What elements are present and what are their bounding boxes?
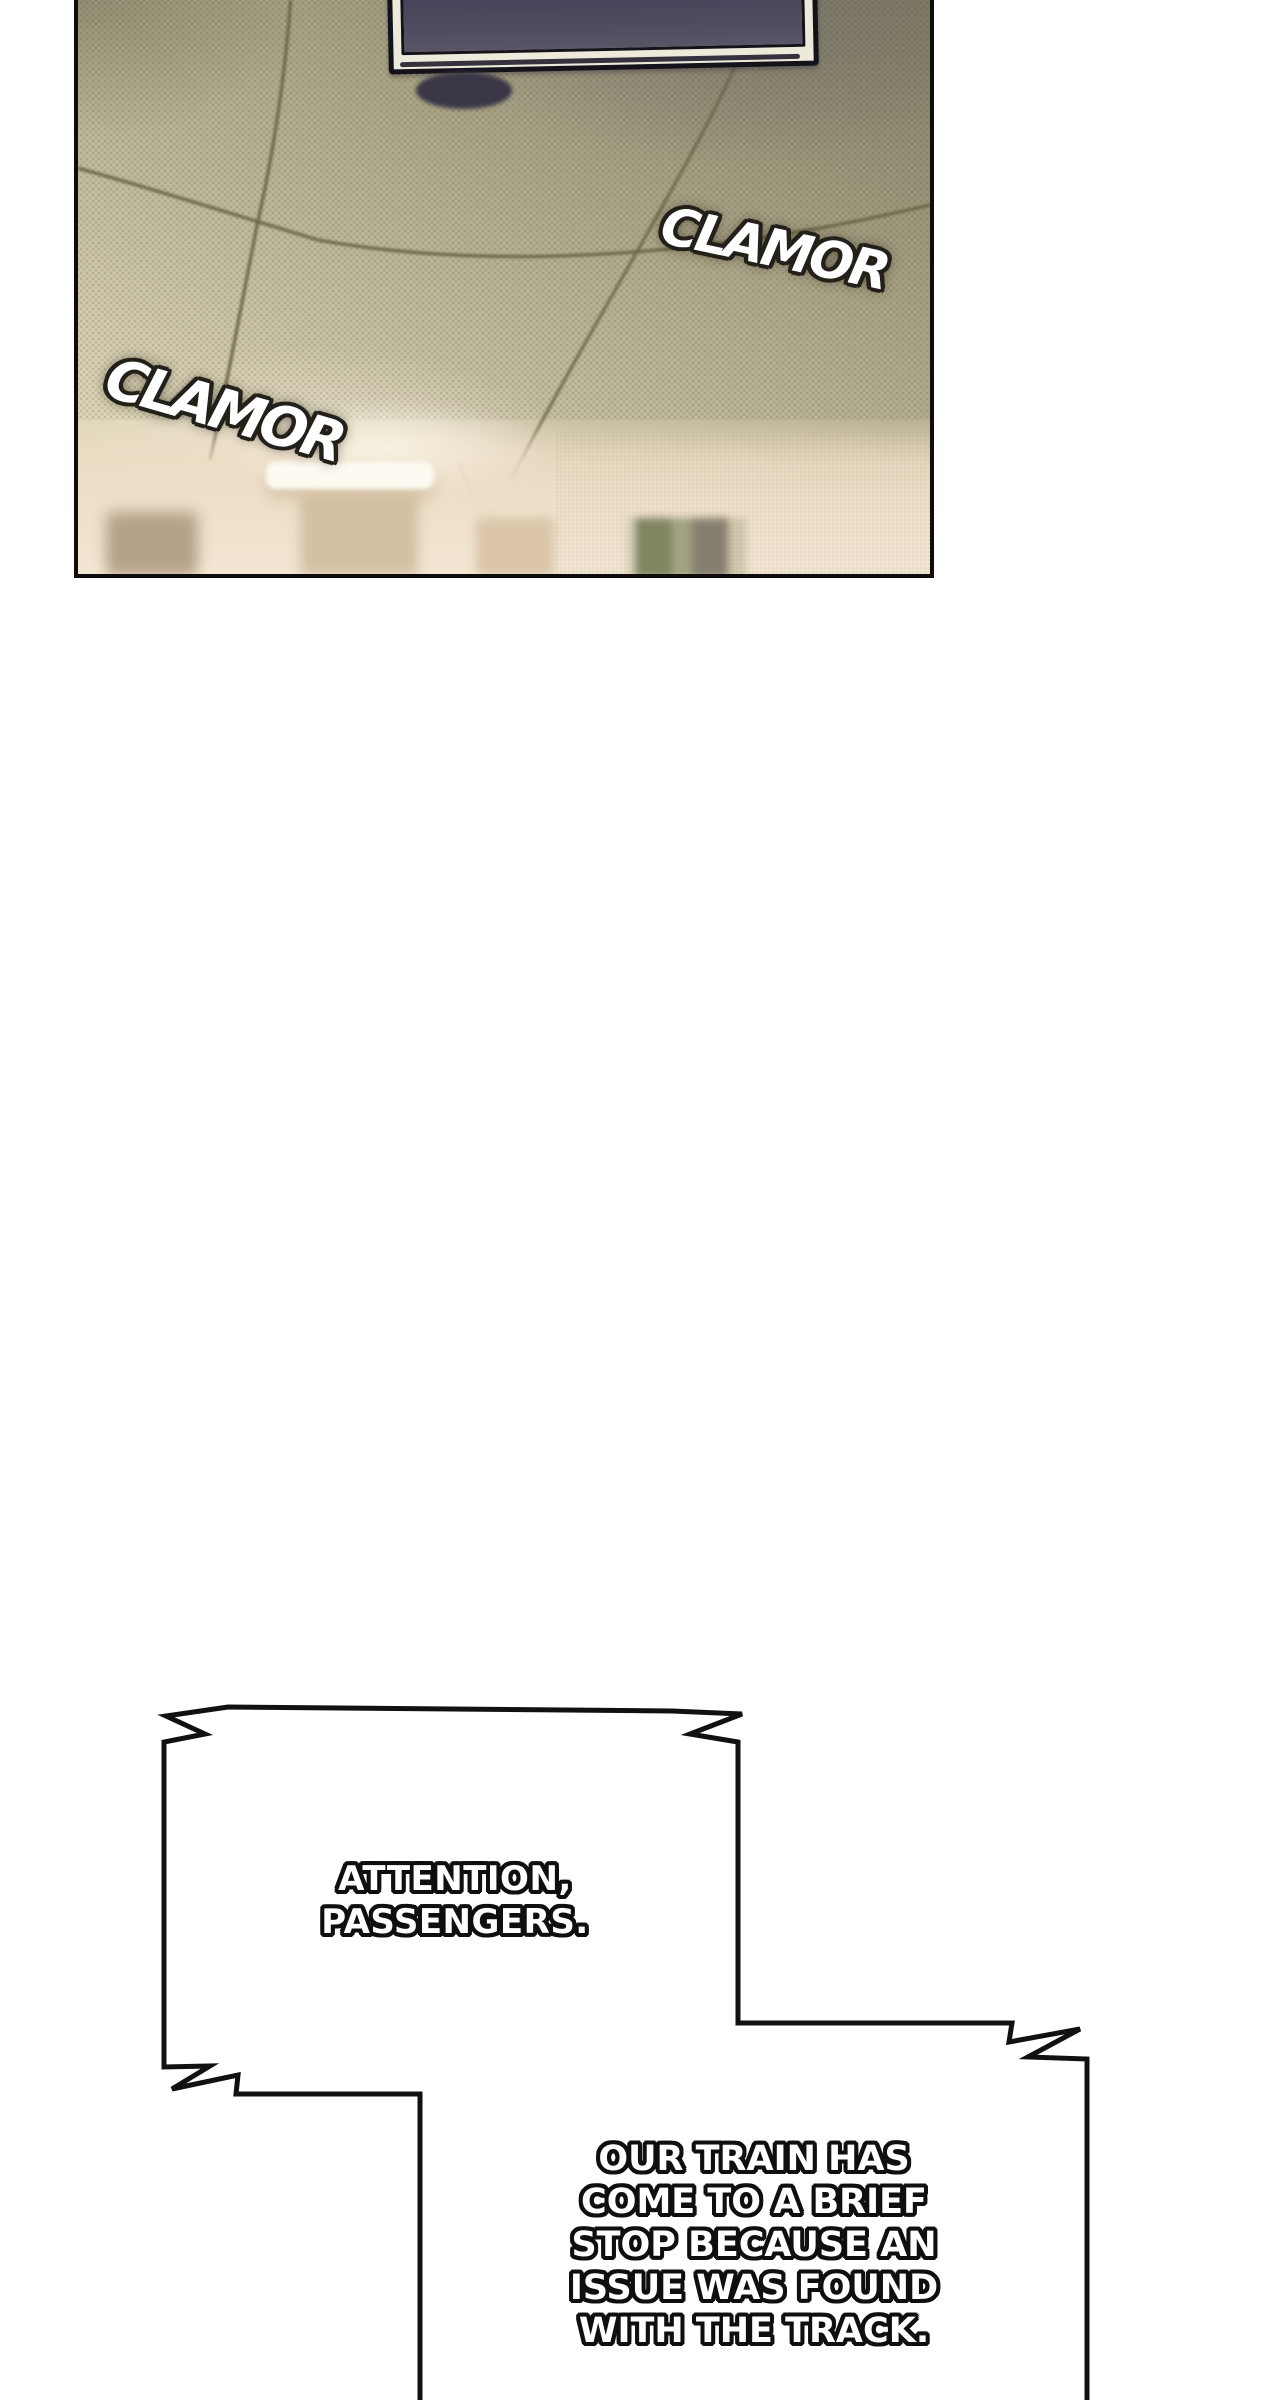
bubble-line: STOP BECAUSE AN (420, 2224, 1088, 2267)
bubble-line: WITH THE TRACK. (420, 2310, 1088, 2353)
bubble-line: PASSENGERS. (164, 1901, 746, 1944)
bubble-line: ISSUE WAS FOUND (420, 2267, 1088, 2310)
bubble-line: COME TO A BRIEF (420, 2181, 1088, 2224)
bubble-text-attention: ATTENTION, PASSENGERS. (164, 1858, 746, 1944)
announcement-bubble (0, 0, 1280, 2400)
comic-page: CLAMOR CLAMOR ATTENTION, PASSENGERS. OUR… (0, 0, 1280, 2400)
bubble-line: OUR TRAIN HAS (420, 2138, 1088, 2181)
bubble-line: ATTENTION, (164, 1858, 746, 1901)
bubble-text-announcement: OUR TRAIN HAS COME TO A BRIEF STOP BECAU… (420, 2138, 1088, 2353)
